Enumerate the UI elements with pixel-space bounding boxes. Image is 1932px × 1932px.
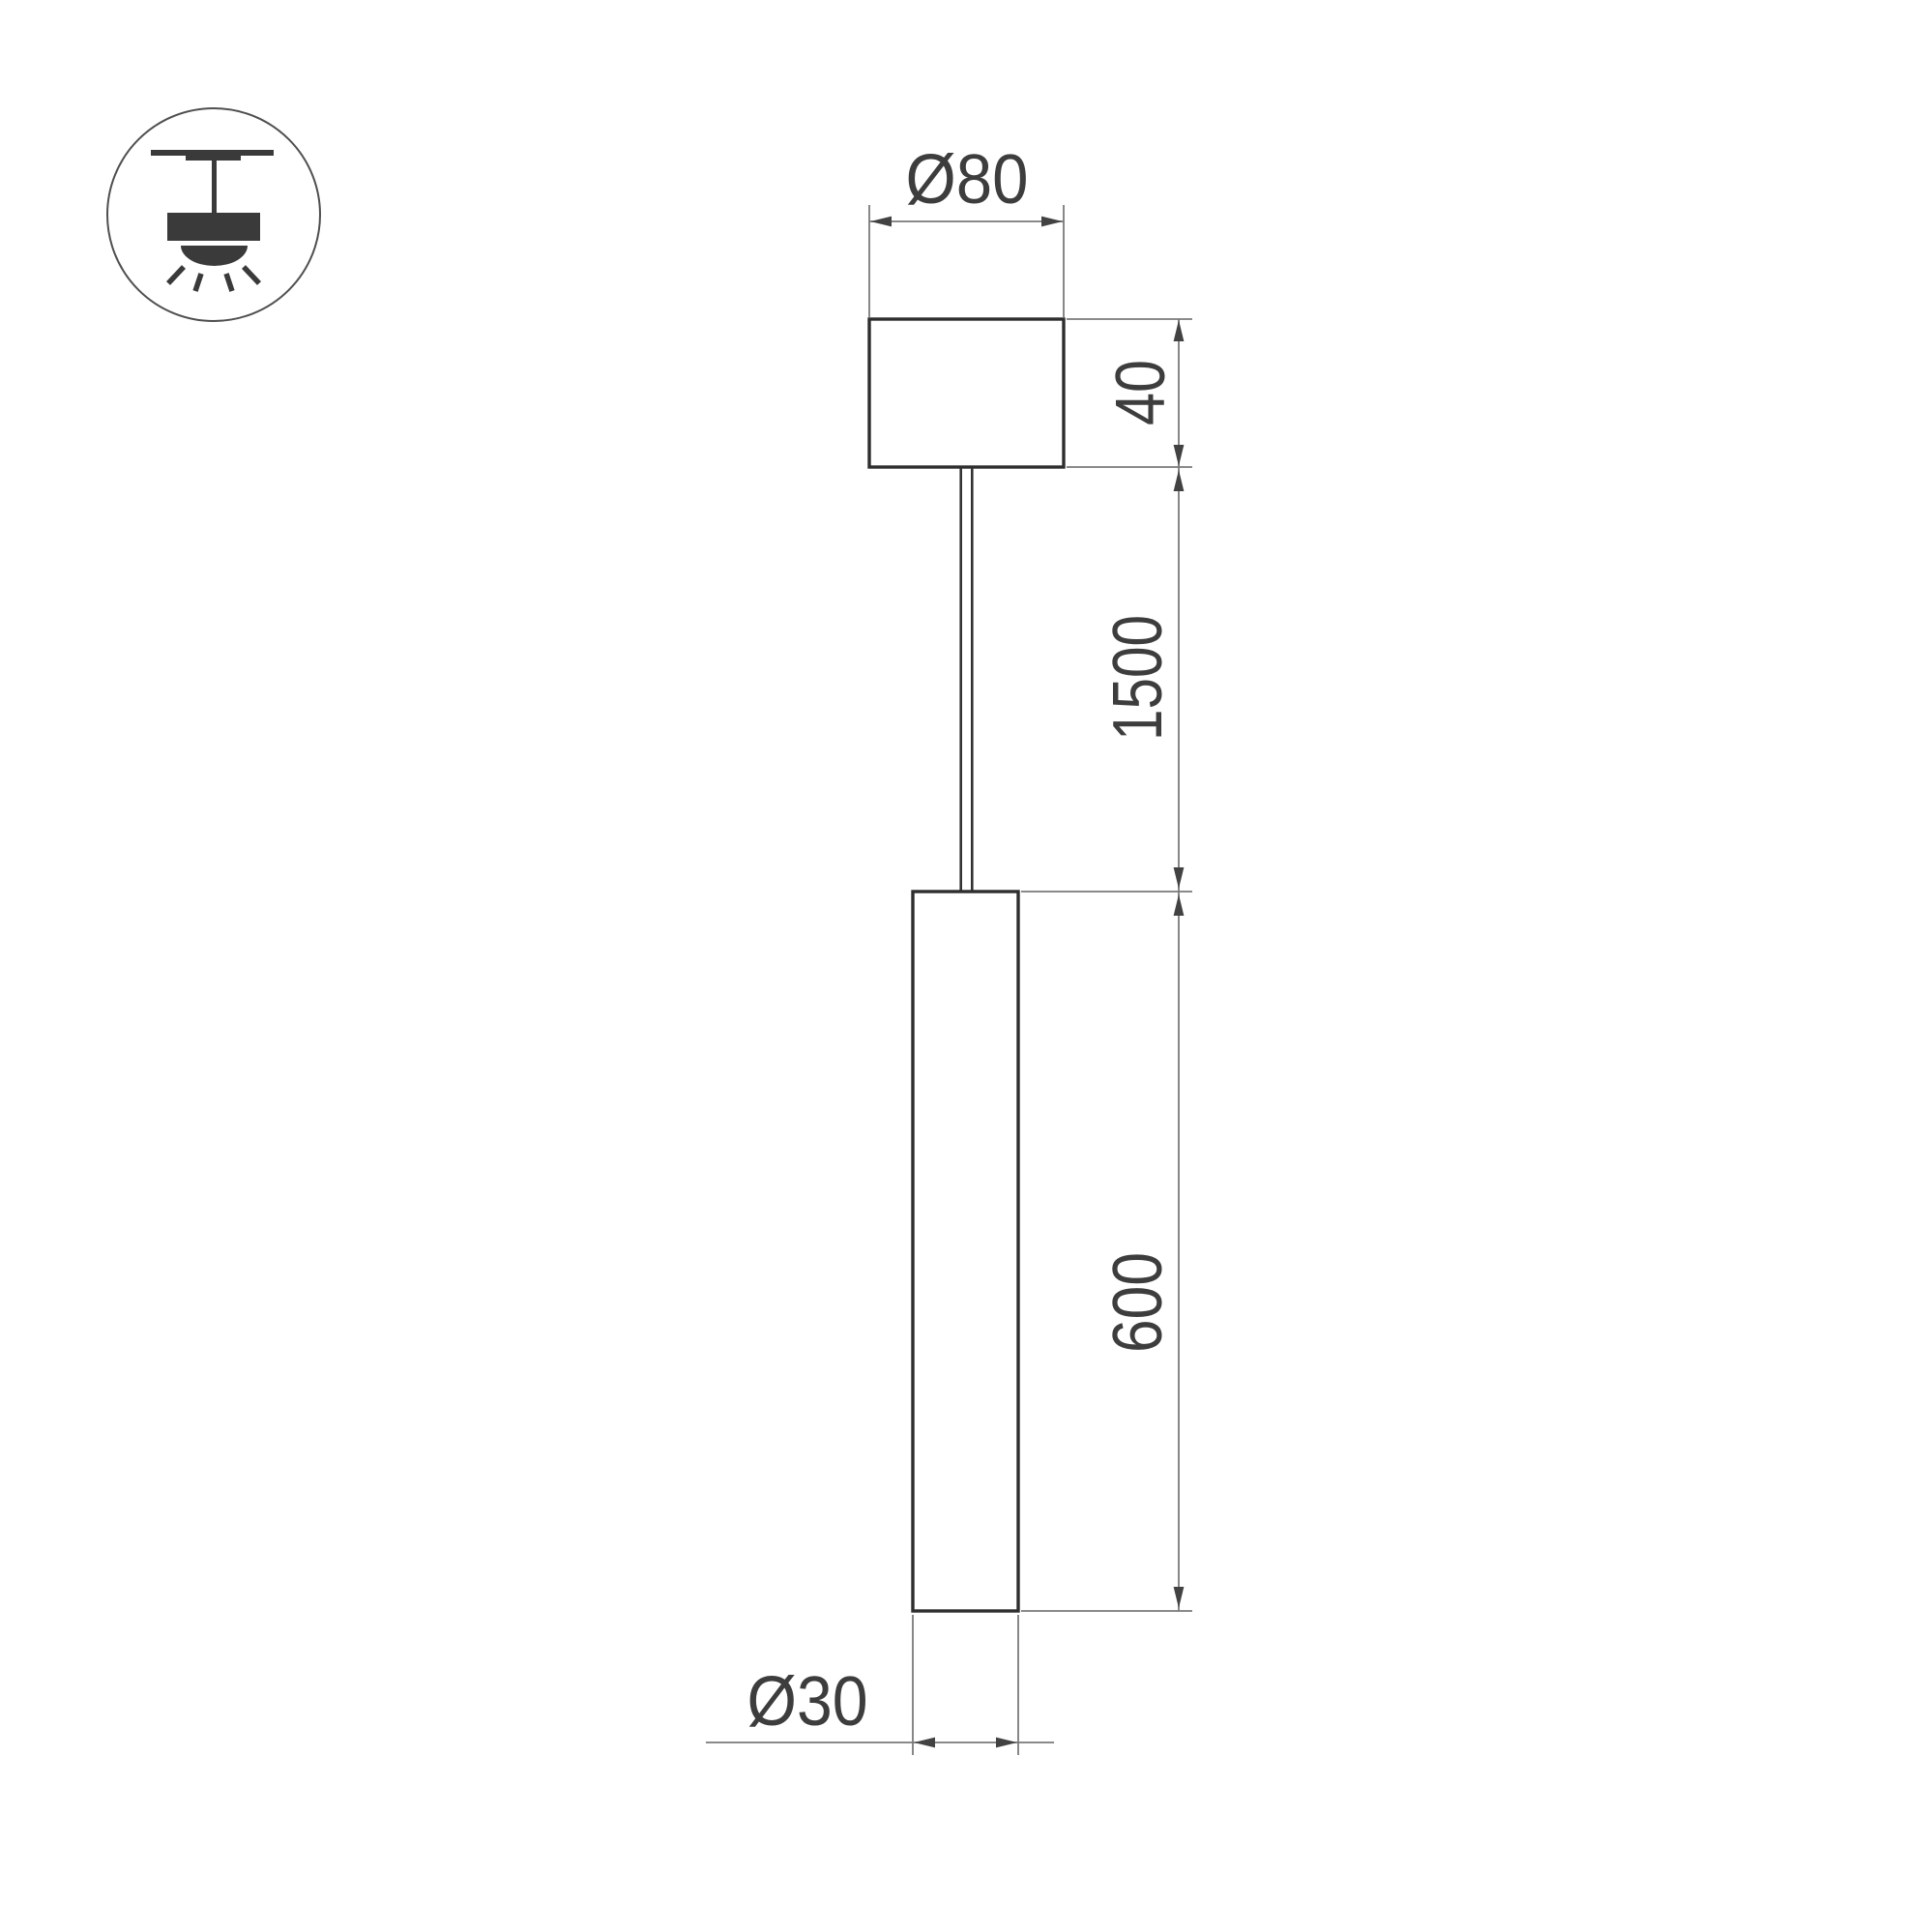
arrow-right	[1041, 217, 1063, 227]
arrow-up	[1174, 320, 1185, 341]
pendant-ceiling-light-icon	[107, 108, 320, 321]
arrow-down	[1174, 1587, 1185, 1608]
dim-canopy-diameter: Ø80	[869, 141, 1064, 317]
dim-tube-diameter: Ø30	[706, 1615, 1054, 1755]
dim-label-canopy-height: 40	[1102, 360, 1180, 425]
luminaire-drawing	[869, 319, 1064, 1611]
canopy-outline	[869, 319, 1064, 467]
arrow-up	[1174, 470, 1185, 491]
dim-tube-length: 600	[1021, 894, 1192, 1611]
suspension-cable	[961, 468, 973, 891]
arrow-up	[1174, 894, 1185, 916]
dim-suspension-length: 1500	[1021, 470, 1192, 892]
dim-label-tube-diameter: Ø30	[747, 1663, 868, 1741]
drawing-svg: Ø80 40 1500 600	[0, 0, 1932, 1932]
dim-label-canopy-diameter: Ø80	[906, 141, 1029, 219]
icon-lamp-body	[167, 213, 260, 241]
dim-label-suspension-length: 1500	[1099, 615, 1177, 741]
arrow-left	[870, 217, 892, 227]
arrow-down	[1174, 445, 1185, 466]
technical-drawing-canvas: Ø80 40 1500 600	[0, 0, 1932, 1932]
dim-canopy-height: 40	[1067, 319, 1192, 467]
arrow-down	[1174, 867, 1185, 889]
icon-stem	[212, 156, 217, 215]
dim-label-tube-length: 600	[1099, 1252, 1177, 1353]
tube-outline	[913, 892, 1018, 1611]
arrow-right	[996, 1738, 1017, 1748]
arrow-left	[914, 1738, 935, 1748]
